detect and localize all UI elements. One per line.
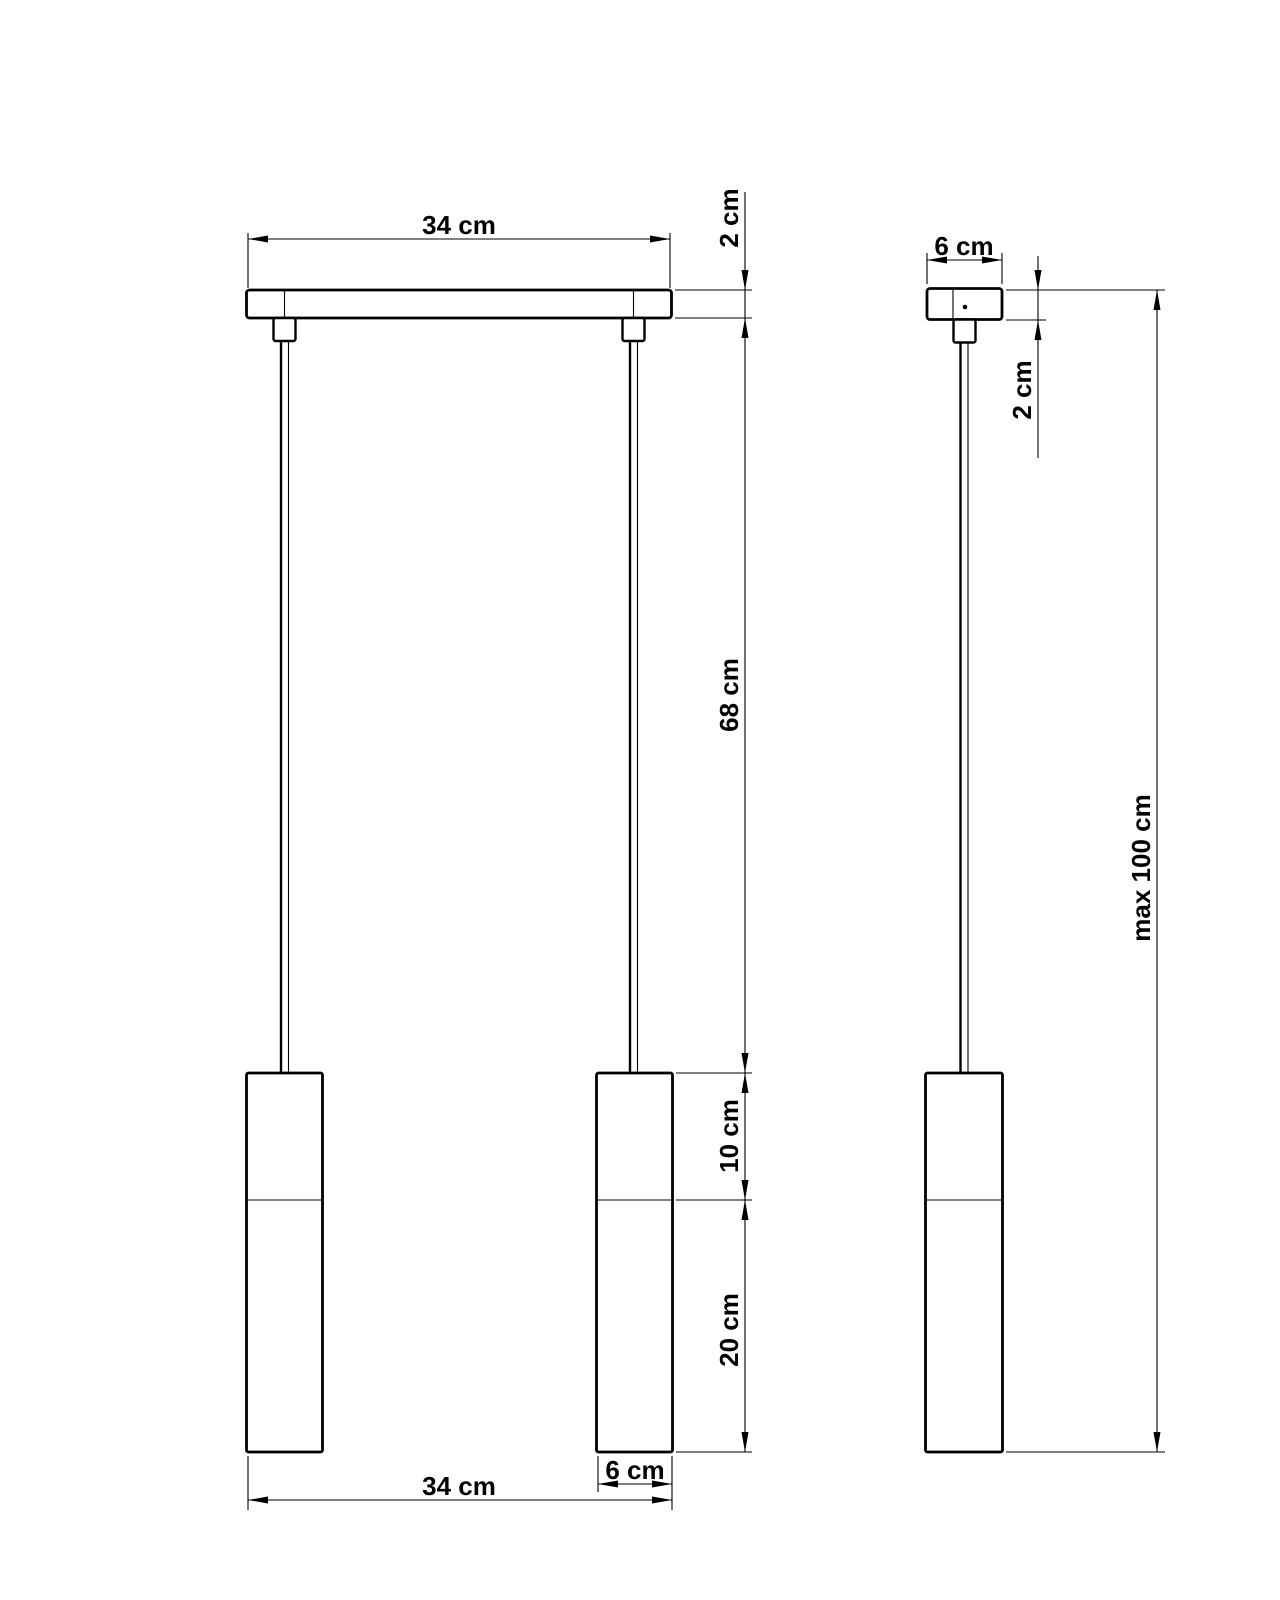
dimension-label-shade-lower: 20 cm — [714, 1293, 744, 1367]
arrowhead — [742, 1053, 749, 1073]
arrowhead — [650, 236, 670, 243]
dimension-label-top-width: 34 cm — [422, 210, 496, 240]
dimension-label-cable-length: 68 cm — [714, 658, 744, 732]
dimension-label-max-drop: max 100 cm — [1126, 794, 1156, 941]
lamp-shade — [926, 1073, 1003, 1452]
arrowhead — [1035, 320, 1042, 340]
arrowhead — [742, 1200, 749, 1220]
arrowhead — [742, 270, 749, 290]
lamp-shade — [597, 1073, 673, 1452]
ceiling-canopy — [927, 289, 1002, 320]
arrowhead — [248, 236, 268, 243]
dimension-label-shade-diameter: 6 cm — [605, 1455, 664, 1485]
dimension-label-canopy-width: 6 cm — [934, 231, 993, 261]
arrowhead — [1154, 1432, 1161, 1452]
dimension-label-side-canopy-thickness: 2 cm — [1007, 360, 1037, 419]
ceiling-bar — [247, 290, 672, 318]
cord-grip — [954, 320, 976, 343]
front-view — [247, 290, 673, 1452]
cord-grip — [274, 318, 296, 341]
dimension-label-canopy-thickness: 2 cm — [714, 188, 744, 247]
technical-drawing-svg: 34 cm 2 cm 68 cm 10 cm 20 cm 6 cm 34 cm — [0, 0, 1280, 1600]
dimension-label-bottom-width: 34 cm — [422, 1471, 496, 1501]
cord-grip — [623, 318, 645, 341]
arrowhead — [742, 1432, 749, 1452]
arrowhead — [652, 1497, 672, 1504]
side-view — [926, 289, 1003, 1453]
arrowhead — [1154, 290, 1161, 310]
technical-drawing-page: 34 cm 2 cm 68 cm 10 cm 20 cm 6 cm 34 cm — [0, 0, 1280, 1600]
arrowhead — [248, 1497, 268, 1504]
arrowhead — [1035, 270, 1042, 290]
dimension-label-shade-upper: 10 cm — [714, 1099, 744, 1173]
arrowhead — [742, 1180, 749, 1200]
arrowhead — [742, 318, 749, 338]
canopy-screw-dot — [963, 305, 968, 310]
arrowhead — [742, 1073, 749, 1093]
lamp-shade — [247, 1073, 323, 1452]
